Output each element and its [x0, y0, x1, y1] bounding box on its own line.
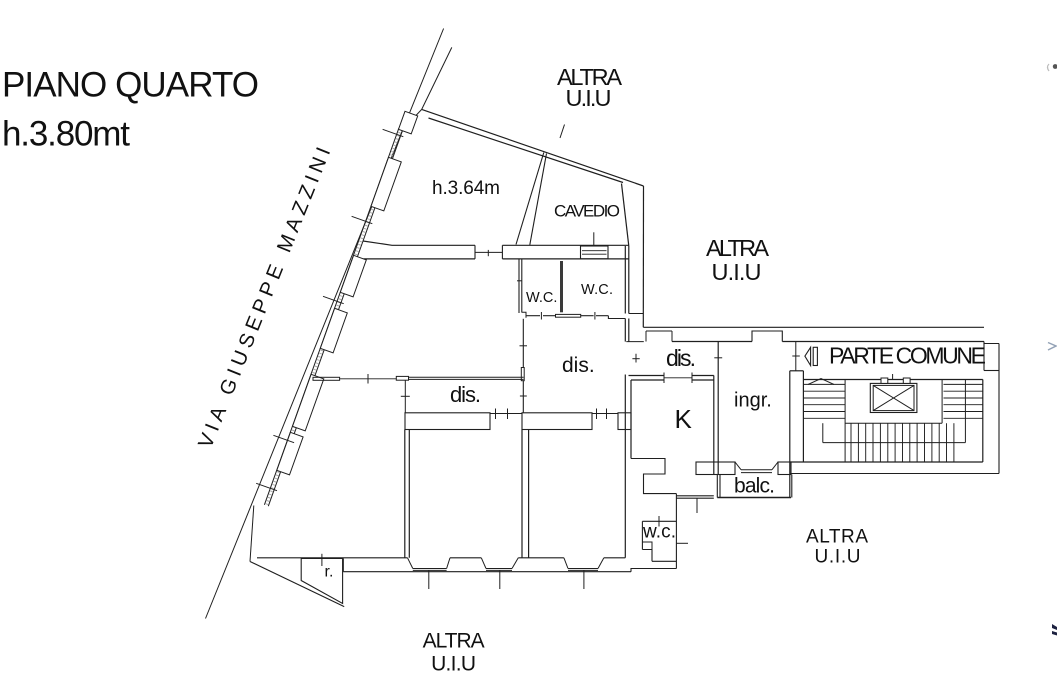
svg-text:dis.: dis.	[666, 345, 696, 371]
svg-text:r.: r.	[325, 564, 334, 581]
svg-text:W.C.: W.C.	[581, 282, 613, 298]
svg-text:CAVEDIO: CAVEDIO	[554, 202, 620, 221]
svg-text:W.C.: W.C.	[526, 290, 557, 306]
svg-text:U.I.U: U.I.U	[566, 85, 612, 111]
svg-text:ingr.: ingr.	[734, 390, 772, 412]
svg-text:U.I.U: U.I.U	[431, 653, 476, 676]
svg-text:U.I.U: U.I.U	[815, 547, 861, 568]
svg-text:K: K	[675, 404, 693, 434]
svg-text:dis.: dis.	[562, 354, 595, 377]
svg-text:PARTE COMUNE: PARTE COMUNE	[829, 343, 986, 369]
svg-text:dis.: dis.	[450, 382, 481, 407]
svg-text:h.3.64m: h.3.64m	[432, 178, 500, 199]
svg-text:U.I.U: U.I.U	[712, 259, 762, 285]
svg-text:w.c.: w.c.	[642, 522, 676, 543]
svg-text:ALTRA: ALTRA	[423, 630, 485, 653]
svg-text:balc.: balc.	[734, 475, 775, 498]
svg-text:h.3.80mt: h.3.80mt	[2, 115, 130, 154]
svg-text:ALTRA: ALTRA	[706, 235, 769, 261]
svg-text:PIANO QUARTO: PIANO QUARTO	[2, 66, 259, 105]
svg-text:ALTRA: ALTRA	[806, 527, 868, 548]
